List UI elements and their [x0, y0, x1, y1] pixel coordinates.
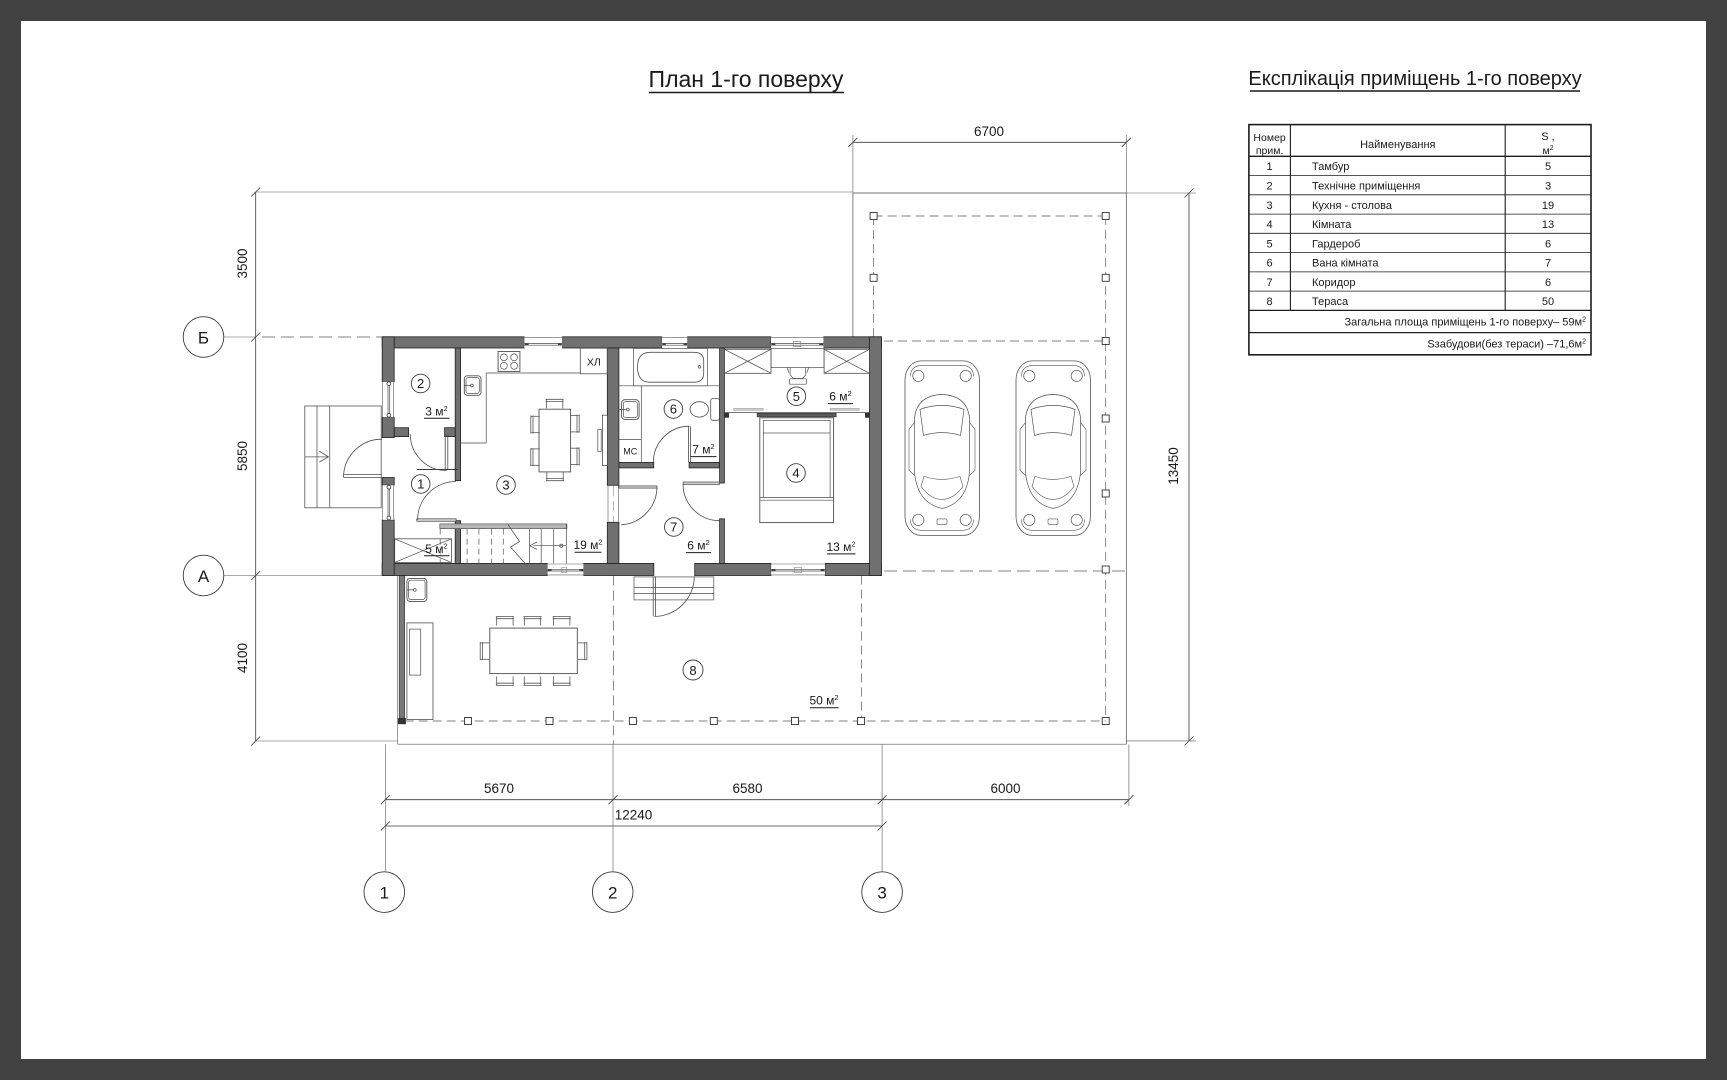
svg-text:19: 19: [1542, 200, 1554, 212]
svg-text:13450: 13450: [1166, 447, 1181, 485]
svg-text:1: 1: [380, 884, 389, 903]
svg-text:Коридор: Коридор: [1312, 277, 1355, 289]
svg-text:13: 13: [1542, 219, 1554, 231]
svg-text:2: 2: [1267, 181, 1273, 193]
svg-text:13 м2: 13 м2: [826, 540, 855, 555]
svg-text:5: 5: [793, 389, 800, 404]
svg-text:6: 6: [670, 402, 677, 417]
svg-text:4: 4: [792, 466, 799, 481]
svg-text:2: 2: [417, 376, 424, 391]
svg-text:7: 7: [670, 520, 677, 535]
svg-text:1: 1: [417, 477, 424, 492]
svg-text:Загальна площа приміщень 1-го: Загальна площа приміщень 1-го поверху– 5…: [1344, 317, 1586, 329]
svg-text:5: 5: [1267, 238, 1273, 250]
svg-text:Найменування: Найменування: [1360, 139, 1435, 151]
svg-text:6: 6: [1545, 238, 1551, 250]
svg-text:5850: 5850: [235, 441, 250, 471]
svg-text:3: 3: [1545, 181, 1551, 193]
svg-text:прим.: прим.: [1256, 145, 1284, 157]
svg-text:5: 5: [1545, 161, 1551, 173]
svg-text:S ,: S ,: [1541, 131, 1554, 143]
svg-text:1: 1: [1267, 161, 1273, 173]
svg-text:3: 3: [877, 884, 886, 903]
svg-text:Sзабудови(без тераси) –71,6м2: Sзабудови(без тераси) –71,6м2: [1427, 339, 1586, 351]
svg-text:Технічне приміщення: Технічне приміщення: [1312, 181, 1420, 193]
svg-text:Б: Б: [198, 329, 209, 348]
svg-text:А: А: [198, 567, 210, 586]
svg-text:3: 3: [1267, 200, 1273, 212]
svg-text:Тамбур: Тамбур: [1312, 161, 1349, 173]
svg-text:50: 50: [1542, 296, 1554, 308]
svg-text:ХЛ: ХЛ: [587, 357, 601, 369]
svg-text:3: 3: [502, 478, 509, 493]
svg-text:Номер: Номер: [1253, 132, 1285, 144]
svg-text:6: 6: [1545, 277, 1551, 289]
svg-text:Вана кімната: Вана кімната: [1312, 258, 1379, 270]
svg-text:6700: 6700: [974, 124, 1004, 139]
svg-text:5670: 5670: [484, 781, 514, 796]
svg-text:7: 7: [1545, 258, 1551, 270]
svg-text:6580: 6580: [732, 781, 762, 796]
svg-text:Гардероб: Гардероб: [1312, 238, 1360, 250]
svg-text:Кімната: Кімната: [1312, 219, 1352, 231]
svg-text:12240: 12240: [615, 808, 653, 823]
svg-text:19 м2: 19 м2: [573, 538, 602, 553]
svg-text:4100: 4100: [235, 643, 250, 673]
svg-text:7: 7: [1267, 277, 1273, 289]
svg-text:6000: 6000: [990, 781, 1020, 796]
svg-text:8: 8: [689, 663, 696, 678]
svg-text:2: 2: [608, 884, 617, 903]
svg-text:6: 6: [1267, 258, 1273, 270]
svg-text:8: 8: [1267, 296, 1273, 308]
svg-text:50 м2: 50 м2: [809, 693, 838, 708]
svg-text:Тераса: Тераса: [1312, 296, 1349, 308]
svg-text:МС: МС: [623, 447, 637, 457]
svg-text:План 1-го поверху: План 1-го поверху: [649, 66, 844, 92]
svg-text:3500: 3500: [235, 248, 250, 278]
svg-text:Кухня - столова: Кухня - столова: [1312, 200, 1393, 212]
svg-text:4: 4: [1267, 219, 1273, 231]
svg-text:Експлікація приміщень 1-го пов: Експлікація приміщень 1-го поверху: [1248, 68, 1581, 90]
